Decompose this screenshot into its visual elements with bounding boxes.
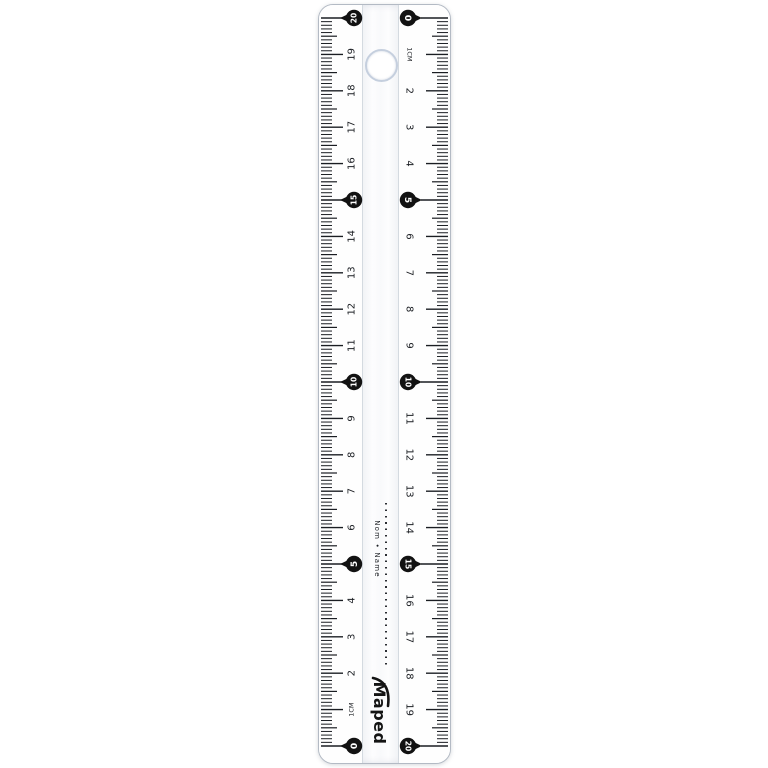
center-clear-strip [362,5,399,763]
name-dotted-line [385,503,387,666]
photo-background: Nom • Name Maped 001CM1CM223344556677889… [0,0,768,768]
left-scale-strip [319,5,362,763]
hanging-hole [365,49,398,82]
ruler: Nom • Name Maped 001CM1CM223344556677889… [318,4,451,764]
right-scale-strip [399,5,450,763]
brand-logo: Maped [368,673,394,751]
brand-logo-text: Maped [370,682,389,745]
name-field-label: Nom • Name [372,509,382,589]
